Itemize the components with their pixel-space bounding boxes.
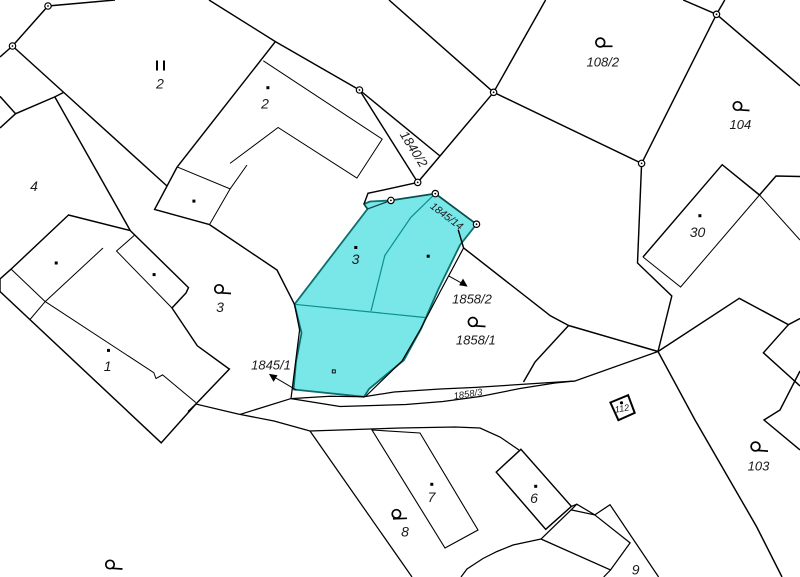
svg-text:1858/2: 1858/2 [452,292,493,307]
svg-text:4: 4 [30,178,38,194]
svg-text:1858/1: 1858/1 [456,333,496,348]
svg-text:3: 3 [352,251,360,267]
svg-text:1845/1: 1845/1 [251,358,291,373]
svg-text:6: 6 [530,490,538,506]
svg-text:2: 2 [155,76,164,92]
svg-text:2: 2 [260,96,269,112]
svg-text:30: 30 [690,224,706,240]
svg-text:7: 7 [428,489,437,505]
svg-text:103: 103 [748,459,770,474]
svg-text:1: 1 [104,358,112,374]
svg-text:3: 3 [216,299,224,315]
svg-text:8: 8 [401,524,409,540]
svg-text:104: 104 [730,117,752,132]
svg-text:108/2: 108/2 [587,55,620,70]
svg-text:9: 9 [632,562,640,577]
